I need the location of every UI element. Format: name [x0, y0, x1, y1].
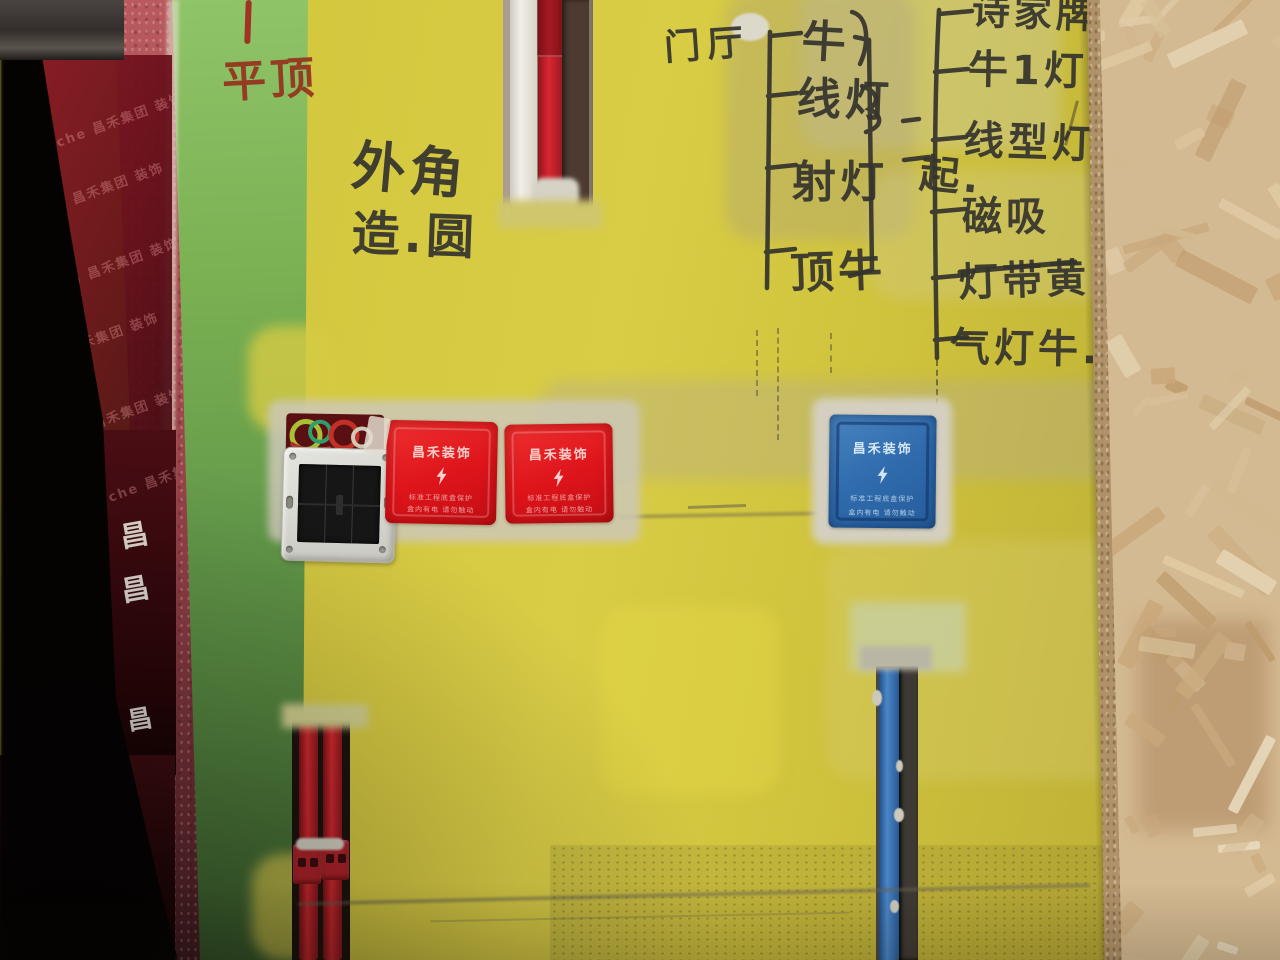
- osb-strand: [1243, 872, 1276, 897]
- outlet-cover-red-2: 昌禾装饰 标准工程底盒保护 盒内有电 请勿触动: [504, 423, 613, 523]
- osb-strand: [1218, 198, 1280, 240]
- ceiling: [0, 0, 124, 60]
- marker-note-corner-line2: 造.圆: [351, 194, 480, 268]
- white-conduit-pipe: [510, 0, 537, 212]
- door-hall-item: 顶牛: [789, 234, 887, 301]
- osb-strand: [1249, 852, 1267, 874]
- osb-strand: [1184, 483, 1210, 517]
- right-list-item: 牛1灯: [968, 37, 1089, 97]
- osb-strand: [1166, 19, 1248, 69]
- pencil-guide-line: [777, 328, 779, 440]
- osb-strand: [1217, 941, 1239, 955]
- switch-mounting-frame: [281, 447, 398, 564]
- right-list-item: 线型灯: [963, 108, 1097, 171]
- door-hall-item: 线灯: [796, 62, 894, 129]
- plaster-blob: [296, 838, 344, 850]
- osb-strand: [1148, 391, 1189, 406]
- door-hall-item: 牛: [800, 5, 851, 71]
- cover-brand-text: 昌禾装饰: [829, 437, 936, 457]
- osb-strand: [1271, 35, 1280, 85]
- plaster-blob: [890, 900, 899, 913]
- plaster-blob: [872, 690, 882, 706]
- osb-strand: [1265, 272, 1280, 301]
- osb-strand: [1174, 249, 1258, 304]
- construction-wall-photo: hanche 昌禾集团 装饰 hanche 昌禾集团 装饰 hanche 昌禾集…: [0, 0, 1280, 960]
- outlet-cover-blue: 昌禾装饰 标准工程底盒保护 盒内有电 请勿触动: [828, 414, 936, 528]
- pencil-guide-line: [756, 330, 758, 396]
- door-hall-label: 门厅: [662, 13, 751, 71]
- pencil-guide-line: [830, 333, 832, 373]
- osb-board: [1098, 0, 1280, 960]
- plaster-blob: [498, 200, 602, 228]
- osb-strand: [1105, 333, 1141, 377]
- cover-warning-line2: 盒内有电 请勿触动: [829, 507, 936, 518]
- osb-strand: [1226, 447, 1252, 495]
- wall-chase-top: [503, 0, 593, 214]
- right-list-item: 磁吸: [962, 184, 1050, 242]
- pipe-clamp: [293, 844, 321, 884]
- screw-hole: [286, 546, 293, 553]
- cover-warning-line1: 标准工程底盒保护: [505, 493, 613, 505]
- red-marker-note: 平顶: [220, 42, 319, 111]
- osb-strand: [1155, 934, 1209, 960]
- osb-strand: [1110, 152, 1128, 171]
- osb-strand: [1195, 78, 1247, 162]
- plaster-blob: [282, 704, 368, 728]
- cover-brand-text: 昌禾装饰: [386, 440, 497, 461]
- lightning-bolt-icon: [436, 467, 447, 489]
- right-list-item-strikethrough: 灯带黄: [957, 246, 1091, 309]
- lightning-bolt-icon: [553, 468, 564, 490]
- cover-brand-text: 昌禾装饰: [505, 443, 613, 464]
- switch-module-black: [297, 464, 381, 544]
- osb-strand: [1150, 368, 1175, 386]
- plaster-blob: [894, 808, 904, 822]
- osb-strand: [1267, 182, 1280, 255]
- switch-tab: [336, 495, 344, 515]
- plaster-blob: [860, 646, 932, 670]
- mounting-slot: [286, 496, 293, 509]
- plaster-patch: [600, 605, 780, 795]
- outlet-cover-red-1: 昌禾装饰 标准工程底盒保护 盒内有电 请勿触动: [385, 420, 498, 525]
- plaster-blob: [896, 760, 903, 772]
- cover-warning-line2: 盒内有电 请勿触动: [505, 504, 613, 516]
- screw-hole: [289, 453, 296, 460]
- screw-hole: [379, 546, 386, 553]
- door-hall-item: 射灯: [792, 146, 888, 210]
- cover-warning-line1: 标准工程底盒保护: [829, 494, 936, 505]
- lightning-bolt-icon: [877, 466, 888, 488]
- pipe-coupling: [537, 0, 563, 57]
- right-list-item: 气灯牛.: [950, 315, 1102, 376]
- osb-strand: [1227, 369, 1253, 383]
